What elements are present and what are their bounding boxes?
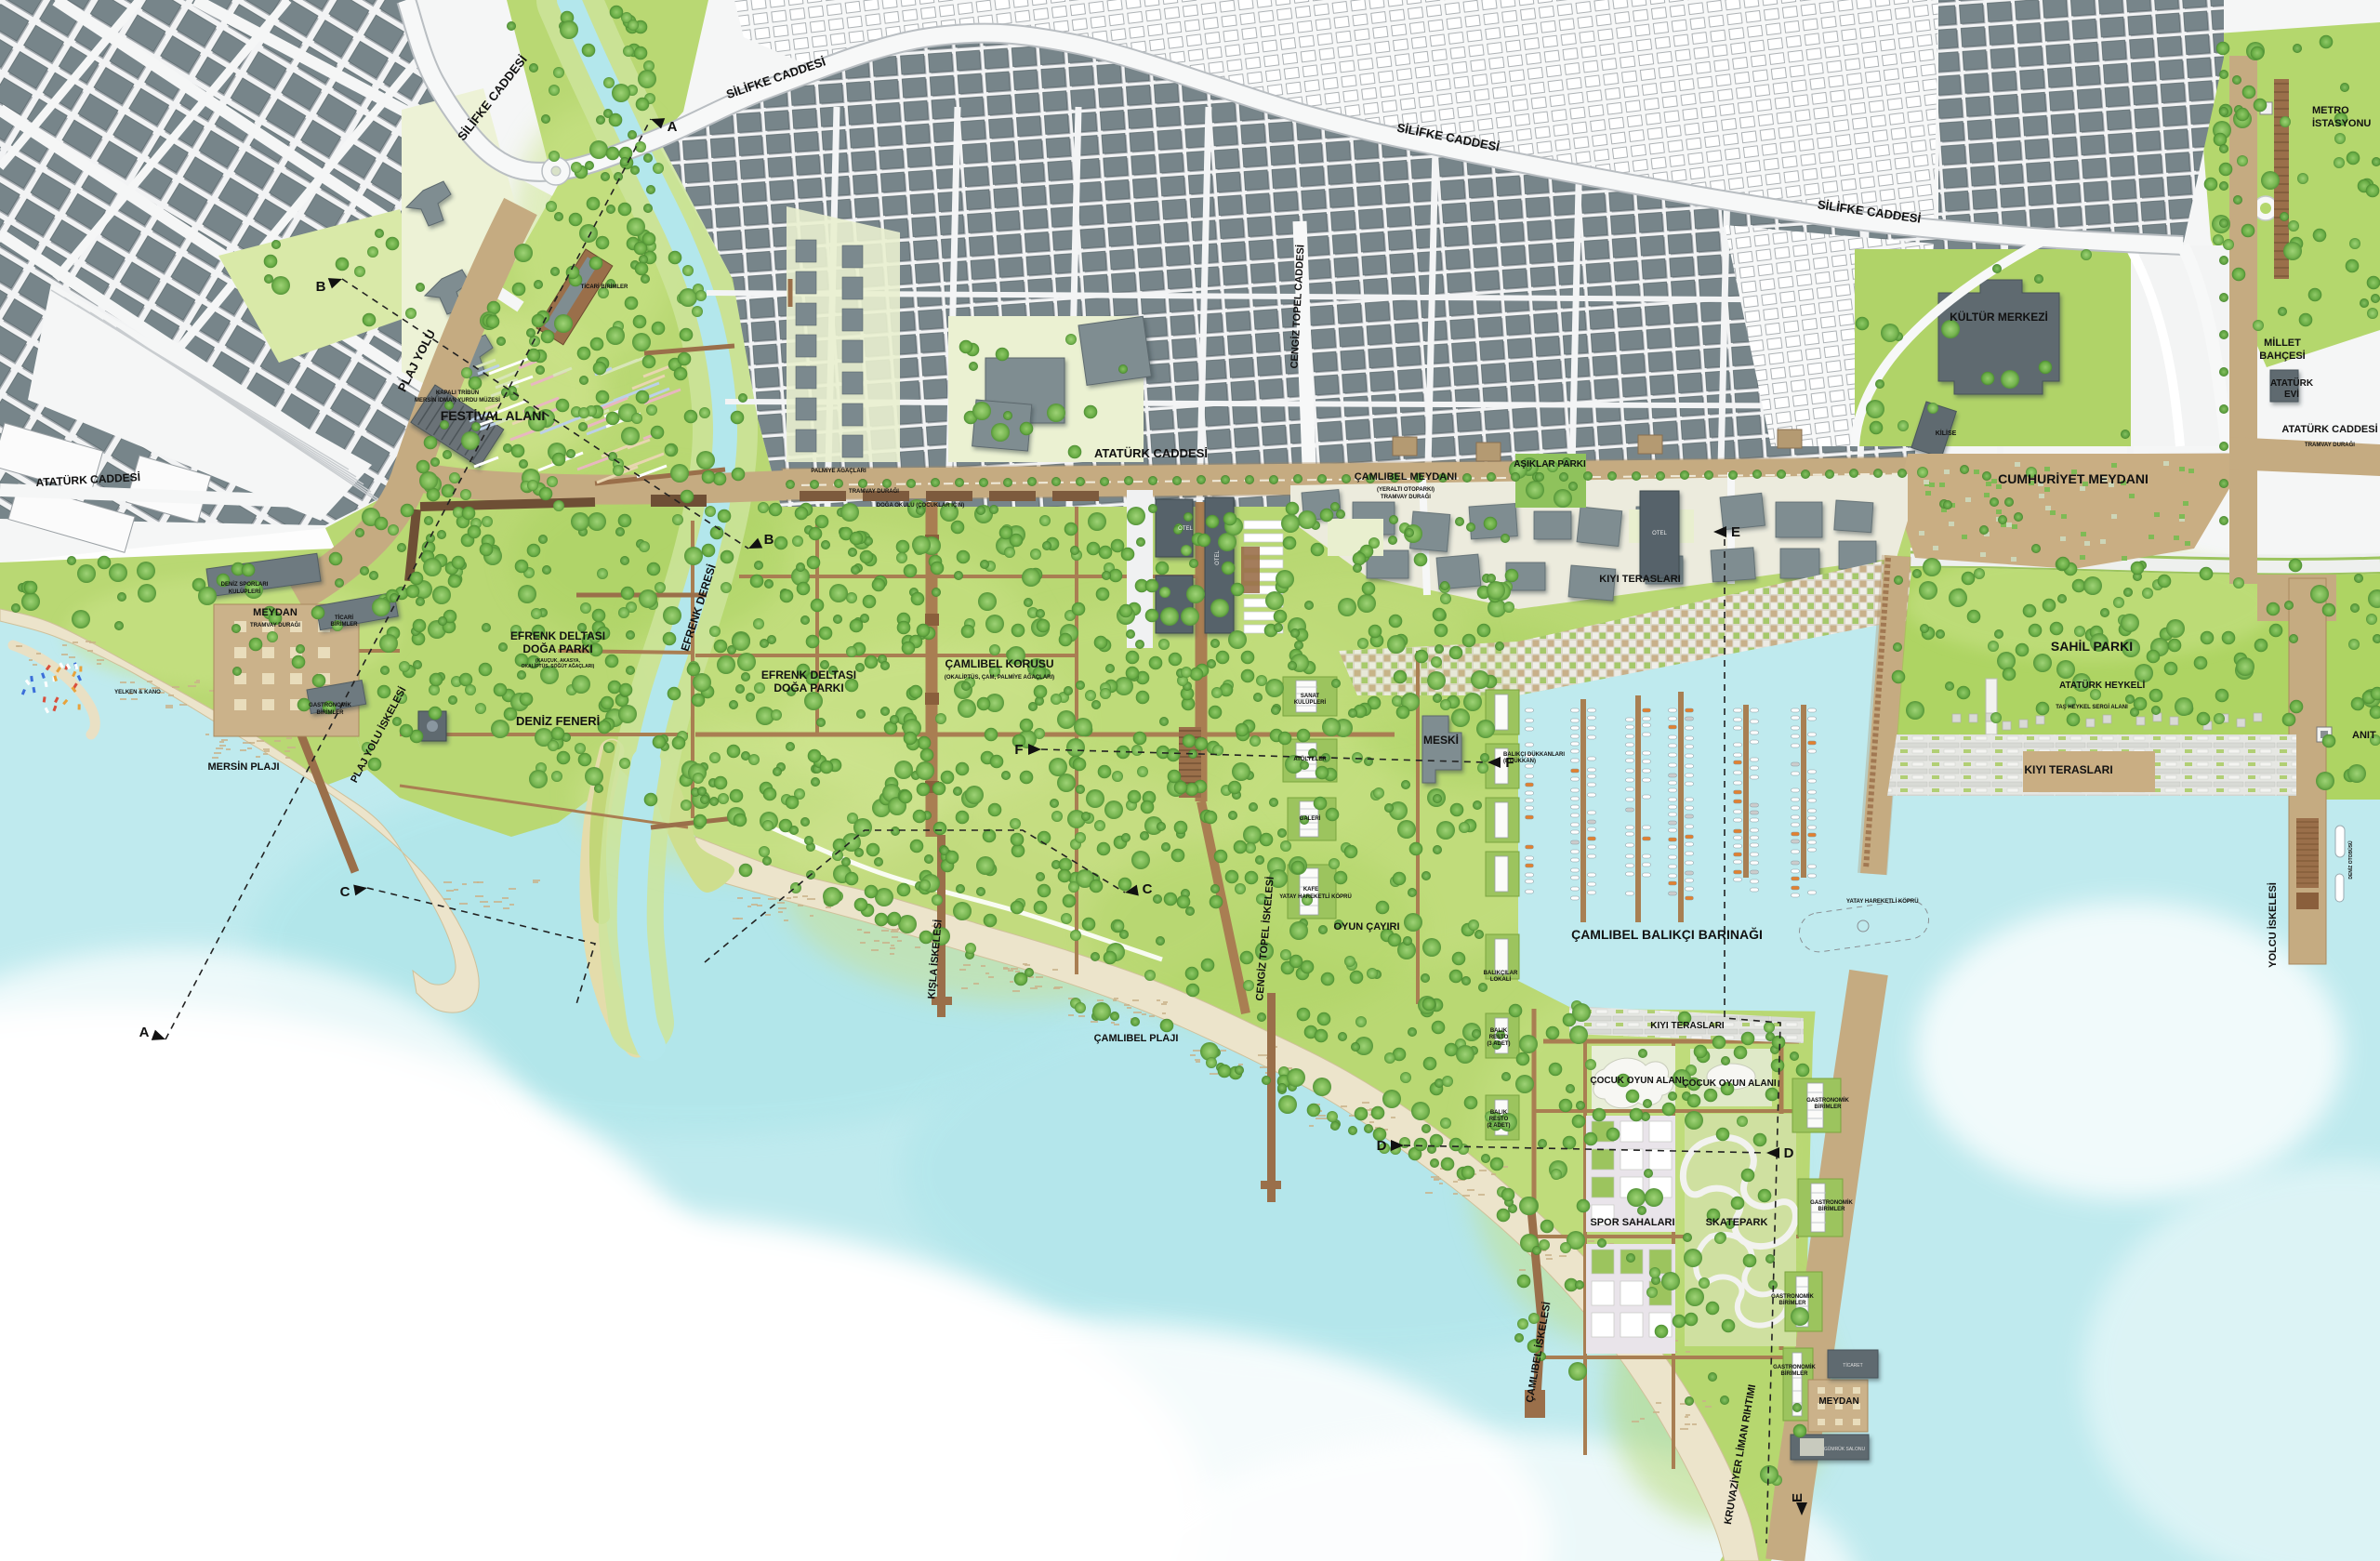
svg-text:ÇOCUK OYUN ALANI: ÇOCUK OYUN ALANI <box>1590 1076 1685 1086</box>
svg-text:DENİZ SPORLARI: DENİZ SPORLARI <box>221 581 269 588</box>
svg-text:KIYI TERASLARI: KIYI TERASLARI <box>1650 1021 1725 1031</box>
svg-text:ATATÜRK CADDESİ: ATATÜRK CADDESİ <box>2281 423 2377 435</box>
svg-text:(8 DÜKKAN): (8 DÜKKAN) <box>1503 758 1536 764</box>
svg-text:KULÜPLERİ: KULÜPLERİ <box>229 589 261 595</box>
svg-text:ANIT: ANIT <box>2352 730 2376 741</box>
svg-text:KÜLTÜR MERKEZİ: KÜLTÜR MERKEZİ <box>1950 310 2048 324</box>
svg-text:AŞIKLAR PARKI: AŞIKLAR PARKI <box>1514 459 1586 470</box>
svg-text:E: E <box>1731 524 1740 540</box>
svg-text:B: B <box>316 279 326 295</box>
svg-text:KULÜPLERİ: KULÜPLERİ <box>1294 699 1327 706</box>
svg-text:KAFE: KAFE <box>1303 887 1318 893</box>
svg-text:DOĞA OKULU (ÇOCUKLAR İÇİN): DOĞA OKULU (ÇOCUKLAR İÇİN) <box>877 501 964 509</box>
svg-text:BİRİMLER: BİRİMLER <box>317 709 345 716</box>
svg-text:EVİ: EVİ <box>2284 388 2299 400</box>
svg-text:GASTRONOMİK: GASTRONOMİK <box>309 702 351 708</box>
svg-text:MİLLET: MİLLET <box>2264 337 2301 349</box>
svg-text:F: F <box>1014 742 1023 758</box>
svg-text:BİRİMLER: BİRİMLER <box>1815 1104 1843 1110</box>
svg-text:MERSİN PLAJI: MERSİN PLAJI <box>207 761 279 773</box>
svg-text:YELKEN & KANO: YELKEN & KANO <box>114 690 161 695</box>
svg-text:SANAT: SANAT <box>1301 694 1320 699</box>
svg-text:BİRİMLER: BİRİMLER <box>1781 1370 1809 1377</box>
svg-text:TİCARİ: TİCARİ <box>335 615 353 621</box>
svg-text:C: C <box>340 884 350 900</box>
svg-text:İSTASYONU: İSTASYONU <box>2312 117 2371 129</box>
svg-text:YATAY HAREKETLİ KÖPRÜ: YATAY HAREKETLİ KÖPRÜ <box>1846 898 1919 905</box>
svg-text:ÇAMLIBEL BALIKÇI BARINAĞI: ÇAMLIBEL BALIKÇI BARINAĞI <box>1571 926 1763 942</box>
svg-text:OTEL: OTEL <box>1652 531 1667 536</box>
svg-text:GALERİ: GALERİ <box>1300 815 1321 822</box>
svg-text:GASTRONOMİK: GASTRONOMİK <box>1771 1293 1814 1300</box>
svg-text:D: D <box>1377 1138 1387 1154</box>
svg-text:B: B <box>764 532 774 548</box>
svg-text:(OKALİPTÜS, ÇAM, PALMİYE AĞAÇL: (OKALİPTÜS, ÇAM, PALMİYE AĞAÇLARI) <box>945 673 1054 681</box>
svg-text:BALIKÇILAR: BALIKÇILAR <box>1484 971 1518 976</box>
svg-text:OTEL: OTEL <box>1215 550 1221 565</box>
svg-text:CUMHURİYET MEYDANI: CUMHURİYET MEYDANI <box>1998 471 2149 486</box>
svg-text:ATATÜRK HEYKELİ: ATATÜRK HEYKELİ <box>2059 679 2145 691</box>
svg-text:C: C <box>1143 881 1153 897</box>
svg-text:BİRİMLER: BİRİMLER <box>1818 1206 1846 1212</box>
svg-text:ÇOCUK OYUN ALANI: ÇOCUK OYUN ALANI <box>1682 1078 1777 1089</box>
svg-text:GÜMRÜK SALONU: GÜMRÜK SALONU <box>1824 1446 1866 1452</box>
svg-text:GASTRONOMİK: GASTRONOMİK <box>1806 1097 1849 1104</box>
svg-text:TİCARET: TİCARET <box>1843 1362 1862 1369</box>
svg-text:DENİZ FENERİ: DENİZ FENERİ <box>516 714 600 728</box>
svg-text:E: E <box>1790 1493 1805 1502</box>
svg-text:A: A <box>139 1025 150 1040</box>
svg-text:OKALİPTÜS, SÖĞÜT AĞAÇLARI): OKALİPTÜS, SÖĞÜT AĞAÇLARI) <box>522 662 595 669</box>
svg-text:MEYDAN: MEYDAN <box>1818 1396 1858 1407</box>
svg-text:ÇAMLIBEL MEYDANI: ÇAMLIBEL MEYDANI <box>1355 471 1457 483</box>
svg-text:RESTO: RESTO <box>1489 1117 1509 1122</box>
svg-text:TİCARİ BİRİMLER: TİCARİ BİRİMLER <box>581 284 628 290</box>
svg-text:OTEL: OTEL <box>1178 526 1193 532</box>
svg-text:TRAMVAY DURAĞI: TRAMVAY DURAĞI <box>2305 441 2355 448</box>
svg-text:DOĞA PARKI: DOĞA PARKI <box>522 642 592 655</box>
svg-text:ATÖLYELER: ATÖLYELER <box>1293 756 1327 762</box>
svg-text:ÇAMLIBEL PLAJI: ÇAMLIBEL PLAJI <box>1094 1033 1179 1044</box>
svg-text:BALIK: BALIK <box>1490 1110 1508 1116</box>
svg-text:(YERALTI OTOPARKI): (YERALTI OTOPARKI) <box>1377 487 1435 493</box>
svg-text:(2 ADET): (2 ADET) <box>1487 1123 1510 1129</box>
svg-text:GASTRONOMİK: GASTRONOMİK <box>1810 1199 1853 1206</box>
svg-text:A: A <box>668 119 678 135</box>
svg-text:EFRENK DELTASI: EFRENK DELTASI <box>761 668 856 681</box>
svg-text:TAŞ HEYKEL SERGİ ALANI: TAŞ HEYKEL SERGİ ALANI <box>2056 704 2128 710</box>
svg-text:SAHİL PARKI: SAHİL PARKI <box>2051 639 2133 654</box>
svg-text:DENİZ OTOBÜSÜ: DENİZ OTOBÜSÜ <box>2347 840 2354 880</box>
svg-text:ÇAMLIBEL KORUSU: ÇAMLIBEL KORUSU <box>945 657 1053 670</box>
svg-text:TRAMVAY DURAĞI: TRAMVAY DURAĞI <box>849 487 899 495</box>
svg-text:BİRİMLER: BİRİMLER <box>331 621 359 628</box>
svg-text:FESTİVAL ALANI: FESTİVAL ALANI <box>441 408 546 423</box>
svg-text:EFRENK DELTASI: EFRENK DELTASI <box>510 629 605 642</box>
svg-text:METRO: METRO <box>2312 105 2349 116</box>
svg-text:MERSİN İDMAN YURDU MÜZESİ: MERSİN İDMAN YURDU MÜZESİ <box>415 397 500 403</box>
svg-text:LOKALİ: LOKALİ <box>1490 976 1512 983</box>
svg-text:BAHÇESİ: BAHÇESİ <box>2259 350 2306 362</box>
svg-text:GASTRONOMİK: GASTRONOMİK <box>1773 1364 1816 1370</box>
svg-text:BİRİMLER: BİRİMLER <box>1779 1300 1807 1306</box>
svg-text:MESKİ: MESKİ <box>1423 733 1459 747</box>
svg-text:YOLCU İSKELESİ: YOLCU İSKELESİ <box>2267 882 2279 968</box>
svg-text:ATATÜRK: ATATÜRK <box>2270 377 2314 389</box>
svg-text:MEYDAN: MEYDAN <box>253 607 297 618</box>
svg-text:KIYI TERASLARI: KIYI TERASLARI <box>2024 763 2112 776</box>
svg-text:BALIK: BALIK <box>1490 1028 1508 1034</box>
svg-text:BALIKÇI DÜKKANLARI: BALIKÇI DÜKKANLARI <box>1503 751 1565 758</box>
svg-text:OYUN ÇAYIRI: OYUN ÇAYIRI <box>1333 921 1399 933</box>
svg-text:(3 ADET): (3 ADET) <box>1487 1041 1510 1047</box>
svg-text:ATATÜRK CADDESİ: ATATÜRK CADDESİ <box>1094 446 1208 460</box>
svg-text:KİLİSE: KİLİSE <box>1936 430 1957 437</box>
svg-text:TRAMVAY DURAĞI: TRAMVAY DURAĞI <box>250 621 300 628</box>
svg-text:D: D <box>1784 1145 1794 1161</box>
svg-text:PALMİYE AĞAÇLARI: PALMİYE AĞAÇLARI <box>811 467 866 474</box>
svg-text:RESTO: RESTO <box>1489 1035 1509 1040</box>
svg-text:YATAY HAREKETLİ KÖPRÜ: YATAY HAREKETLİ KÖPRÜ <box>1279 893 1352 900</box>
svg-text:SKATEPARK: SKATEPARK <box>1706 1217 1768 1228</box>
svg-text:SPOR SAHALARI: SPOR SAHALARI <box>1590 1217 1674 1228</box>
svg-text:KAPALI TRİBÜN: KAPALI TRİBÜN <box>436 390 479 396</box>
svg-text:DOĞA PARKI: DOĞA PARKI <box>773 681 843 695</box>
svg-text:TRAMVAY DURAĞI: TRAMVAY DURAĞI <box>1381 493 1431 500</box>
svg-text:KIYI TERASLARI: KIYI TERASLARI <box>1599 574 1680 585</box>
